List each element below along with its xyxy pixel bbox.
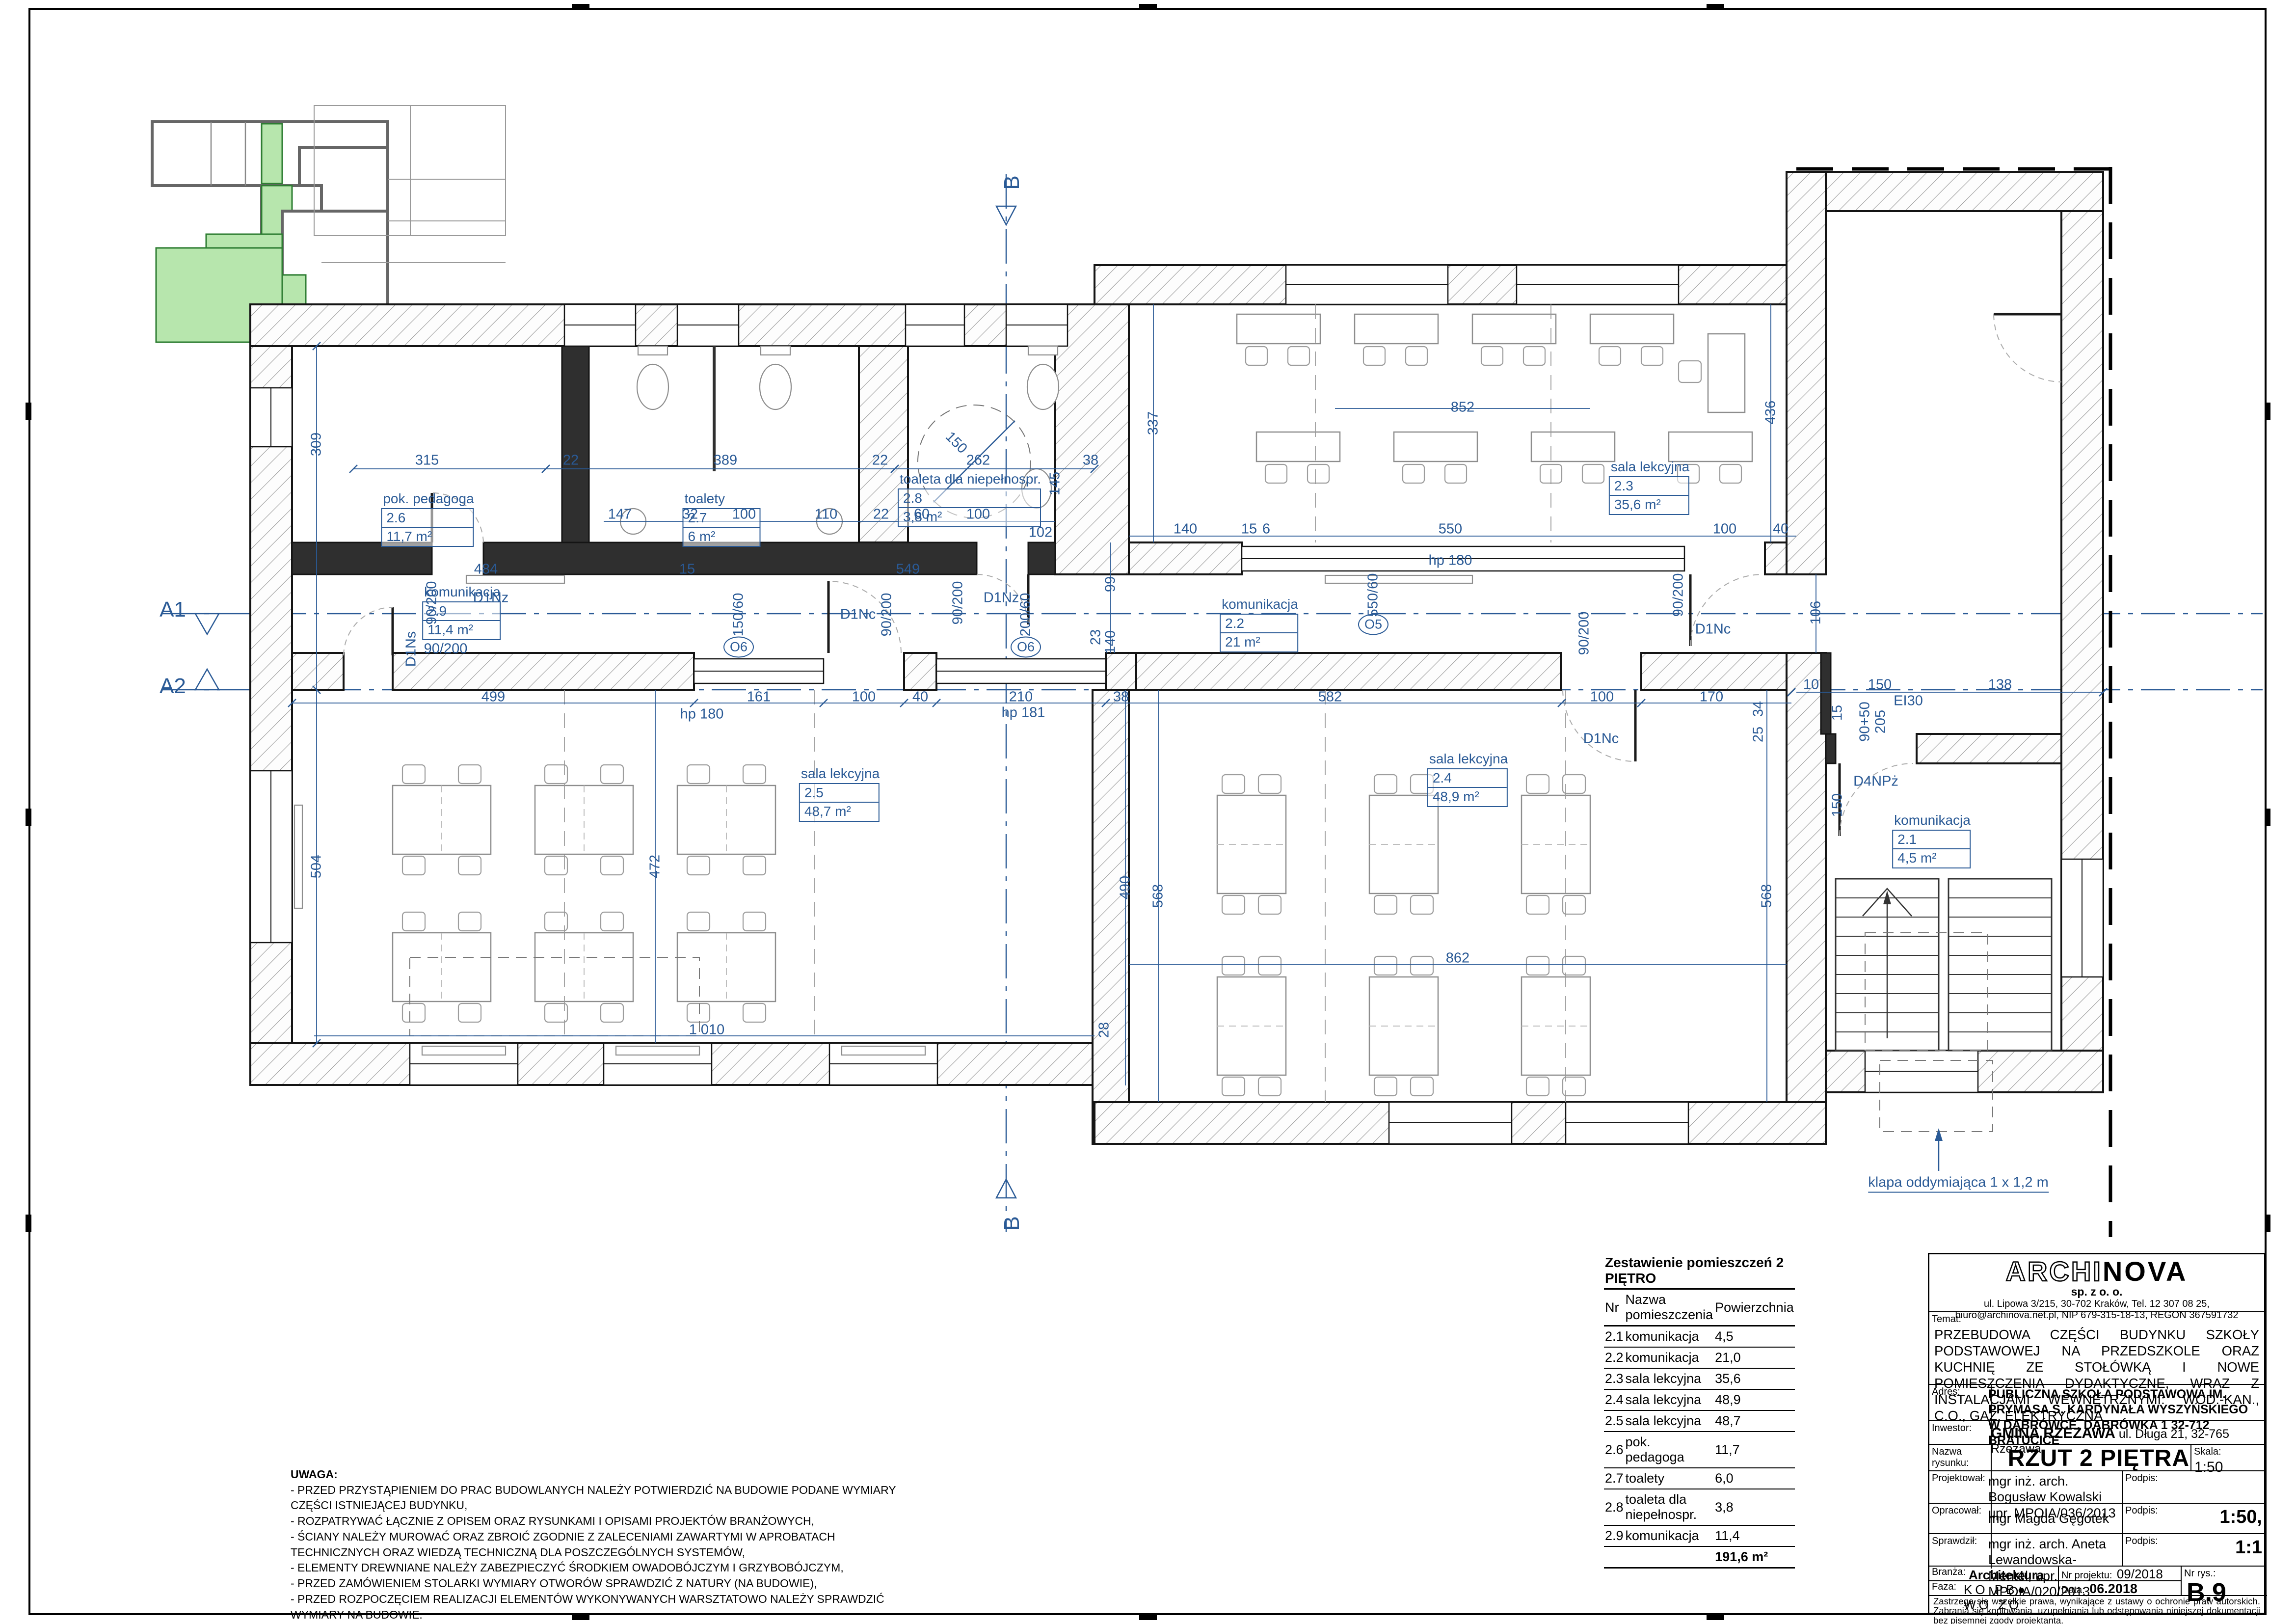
dim-label: 499 [481,690,505,704]
discipline-cell: Branża: Architektura [1929,1567,2058,1581]
drawing-number-cell: Nr rys.: B.9 [2181,1567,2267,1596]
dim-label: 15 [679,563,695,577]
discipline-label: Branża: [1929,1565,1968,1579]
dim-label: D1Nc [840,608,876,622]
dim-label: D4NPż [1853,775,1898,789]
dim-label: EI30 [1894,694,1923,708]
dim-label: 140 [1174,522,1197,537]
general-notes: UWAGA: - PRZED PRZYSTĄPIENIEM DO PRAC BU… [291,1467,924,1623]
dim-label: 309 [310,433,324,456]
stairs [1836,879,2052,1171]
note-item: - ROZPATRYWAĆ ŁĄCZNIE Z OPISEM ORAZ RYSU… [291,1514,924,1529]
date-label: Data: [2059,1583,2087,1597]
dim-label: 38 [1113,690,1129,704]
dim-label: 32 [682,508,698,522]
dim-label: 90/200 [951,581,965,625]
dim-label: 10 [1803,678,1819,692]
dim-label: A2 [160,676,186,697]
key-plan-stair-green [262,124,282,184]
dim-label: 150/60 [732,593,746,637]
date-cell: Data: 06.2018 [2058,1581,2181,1596]
dim-label: 147 [608,508,632,522]
schedule-row: 2.4sala lekcyjna48,9 [1604,1389,1795,1410]
dim-label: 262 [966,454,990,468]
note-item: - ELEMENTY DREWNIANE NALEŻY ZABEZPIECZYĆ… [291,1560,924,1576]
note-item: - ŚCIANY NALEŻY MUROWAĆ ORAZ ZBROIĆ ZGOD… [291,1529,924,1560]
dim-label: 150 [1868,678,1892,692]
company-logo: ARCHINOVA sp. z o. o. ul. Lipowa 3/215, … [1929,1254,2264,1312]
phase-cell: Faza: KO PB● WO ZO [1929,1581,2058,1596]
dim-label: hp 180 [680,707,724,722]
schedule-header-nr: Nr [1604,1289,1625,1326]
dim-label: 22 [872,454,888,468]
dim-label: 100 [966,508,990,522]
schedule-total: 191,6 m² [1714,1546,1795,1568]
schedule-title: Zestawienie pomieszczeń 2 PIĘTRO [1604,1253,1795,1289]
section-marker-a1 [195,614,219,634]
dim-label: 436 [1764,401,1778,424]
section-marker-b-top [996,206,1016,225]
section-marker-a2 [195,669,219,690]
dim-label: 90/200 [425,581,439,625]
dim-label: 100 [732,508,756,522]
copyright-disclaimer: Zastrzega się wszelkie prawa, wynikające… [1929,1596,2264,1616]
dim-label: 106 [1809,601,1823,624]
dim-label: 568 [1151,884,1166,908]
project-number-cell: Nr projektu: 09/2018 [2058,1567,2181,1581]
dim-label: hp 180 [1429,554,1472,568]
opening-badge: O5 [1358,614,1388,635]
schedule-row: 2.1komunikacja4,5 [1604,1326,1795,1348]
schedule-row: 2.8toaleta dla niepełnospr.3,8 [1604,1489,1795,1525]
dim-label: 337 [1147,411,1161,435]
dim-label: D1Nc [1583,732,1619,746]
dim-label: klapa oddymiająca 1 x 1,2 m [1868,1176,2049,1193]
dim-label: 170 [1700,690,1723,704]
opening-badge: O6 [723,637,754,658]
dim-label: 472 [648,855,663,878]
schedule-row: 2.3sala lekcyjna35,6 [1604,1368,1795,1389]
dim-label: 100 [852,690,876,704]
dim-label: 25 [1752,727,1766,742]
scale-label: Skala: [2191,1445,2264,1459]
drawing-name-label: Nazwa rysunku: [1929,1445,1992,1473]
room-schedule-table: Zestawienie pomieszczeń 2 PIĘTRO Nr Nazw… [1604,1253,1775,1569]
handwritten-scale-1: 1:50, [2219,1507,2262,1528]
author-cell: Opracował: mgr Magda Gęgotek Podpis: 1:5… [1929,1504,2264,1534]
dim-label: 852 [1451,401,1474,415]
dim-label: 90/200 [1577,612,1592,655]
designer-label: Projektował: [1929,1471,1992,1506]
room-label: sala lekcyjna2.448,9 m² [1427,751,1508,807]
dim-label: 389 [714,454,737,468]
dim-label: 549 [896,563,920,577]
dim-label: 100 [1713,522,1736,537]
toilet-icon [1027,364,1059,409]
project-number-label: Nr projektu: [2059,1569,2114,1582]
title-block: ARCHINOVA sp. z o. o. ul. Lipowa 3/215, … [1928,1253,2266,1614]
dim-label: 140 [1104,630,1118,654]
dim-label: B [1001,1216,1023,1230]
checker-label: Sprawdził: [1929,1534,1992,1569]
checker-cell: Sprawdził: mgr inż. arch. Aneta Lewandow… [1929,1534,2264,1567]
dim-label: 90+50 [1858,702,1872,741]
dim-label: 22 [563,454,579,468]
schedule-row: 2.9komunikacja11,4 [1604,1525,1795,1546]
dim-label: 15 [1241,522,1257,537]
drawing-sheet: pok. pedagoga2.611,7 m²toalety2.76 m²toa… [0,0,2296,1624]
handwritten-scale-2: 1:1 [2235,1537,2262,1558]
schedule-row: 2.5sala lekcyjna48,7 [1604,1410,1795,1432]
dim-label: 210 [1009,690,1033,704]
dim-label: 34 [1752,701,1766,717]
dim-label: A1 [160,599,186,621]
discipline-value: Architektura [1969,1568,2044,1583]
dim-label: 15 [1831,705,1845,721]
dim-label: 38 [1083,454,1098,468]
company-suffix: sp. z o. o. [1929,1285,2264,1299]
note-item: - PRZED PRZYSTĄPIENIEM DO PRAC BUDOWLANY… [291,1483,924,1514]
room-label: komunikacja2.14,5 m² [1892,812,1971,868]
opening-badge: O6 [1011,637,1041,658]
dim-label: 161 [747,690,771,704]
notes-title: UWAGA: [291,1467,924,1483]
dim-label: hp 181 [1002,706,1045,720]
dim-label: 568 [1760,884,1774,908]
designer-cell: Projektował: mgr inż. arch. Bogusław Kow… [1929,1471,2264,1504]
dim-label: 40 [1773,522,1789,537]
dim-label: 550/60 [1366,573,1381,617]
brand-outline: ARCHI [2006,1256,2103,1287]
dim-label: 145 [1048,472,1063,495]
room-label: sala lekcyjna2.548,7 m² [799,766,880,822]
investor-name: GMINA RZEZAWA [1991,1425,2115,1441]
toilet-icon [637,364,668,409]
dim-label: 100 [1590,690,1614,704]
note-item: - PRZED ZAMÓWIENIEM STOLARKI WYMIARY OTW… [291,1576,924,1592]
note-item: - PRZED ROZPOCZĘCIEM REALIZACJI ELEMENTÓ… [291,1592,924,1623]
dim-label: 99 [1104,576,1118,592]
smoke-hatch-arrow [1935,1128,1943,1141]
dim-label: 490 [1119,876,1133,899]
dim-label: 102 [1029,526,1052,540]
dim-label: 90/200 [424,642,468,656]
date-value: 06.2018 [2089,1581,2137,1596]
dim-label: 504 [310,855,324,878]
address-cell: Adres: PUBLICZNA SZKOŁA PODSTAWOWA IM. P… [1929,1385,2264,1421]
room-label: komunikacja2.221 m² [1220,596,1298,652]
dim-label: 150 [1831,793,1845,817]
room-label: sala lekcyjna2.335,6 m² [1609,459,1689,515]
dim-label: 1 010 [689,1023,725,1037]
dim-label: 40 [912,690,928,704]
dim-label: D1Nz [473,591,509,605]
room-label: pok. pedagoga2.611,7 m² [381,491,474,547]
drawing-title: RZUT 2 PIĘTRA [1988,1445,2189,1472]
drawing-name-cell: Nazwa rysunku: RZUT 2 PIĘTRA Skala: 1:50 [1929,1445,2264,1471]
investor-label: Inwestor: [1929,1421,1992,1447]
schedule-row: 2.7toalety6,0 [1604,1468,1795,1489]
dim-label: 200/60 [1019,593,1033,637]
author-label: Opracował: [1929,1504,1992,1536]
dim-label: B [1001,175,1023,189]
address-label: Adres: [1929,1385,1992,1423]
dim-label: 90/200 [1672,573,1686,617]
dim-label: 6 [1262,522,1270,537]
dim-label: D1Nz [984,591,1019,605]
phase-label: Faza: [1929,1580,1959,1594]
author-name: mgr Magda Gęgotek [1988,1511,2116,1526]
company-address-line1: ul. Lipowa 3/215, 30-702 Kraków, Tel. 12… [1929,1299,2264,1310]
dim-label: 205 [1874,710,1888,733]
brand-solid: NOVA [2103,1256,2188,1287]
dim-label: 110 [815,508,837,522]
signature-label: Podpis: [2123,1471,2268,1486]
schedule-row: 2.6pok. pedagoga11,7 [1604,1432,1795,1468]
investor-cell: Inwestor: GMINA RZEZAWA ul. Długa 21, 32… [1929,1421,2264,1445]
dim-label: 22 [873,508,889,522]
dim-label: D1Ns [404,631,419,667]
schedule-header-area: Powierzchnia [1714,1289,1795,1326]
walls [250,172,2103,1144]
subject-cell: Temat: PRZEBUDOWA CZĘŚCI BUDYNKU SZKOŁY … [1929,1312,2264,1385]
dim-label: 28 [1097,1022,1112,1038]
dim-label: D1Nc [1695,623,1731,637]
dim-label: 315 [415,454,439,468]
schedule-header-name: Nazwa pomieszczenia [1625,1289,1714,1326]
toilet-icon [760,364,791,409]
subject-label: Temat: [1929,1312,2264,1326]
dim-label: 582 [1318,690,1342,704]
dim-label: 138 [1988,678,2012,692]
dim-label: 60 [914,508,930,522]
dim-label: 23 [1089,629,1103,645]
schedule-row: 2.2komunikacja21,0 [1604,1347,1795,1368]
dim-label: 862 [1446,951,1469,966]
dim-label: 550 [1439,522,1462,537]
dim-label: 90/200 [880,593,894,637]
project-number-value: 09/2018 [2117,1567,2163,1581]
dim-label: 484 [474,563,498,577]
